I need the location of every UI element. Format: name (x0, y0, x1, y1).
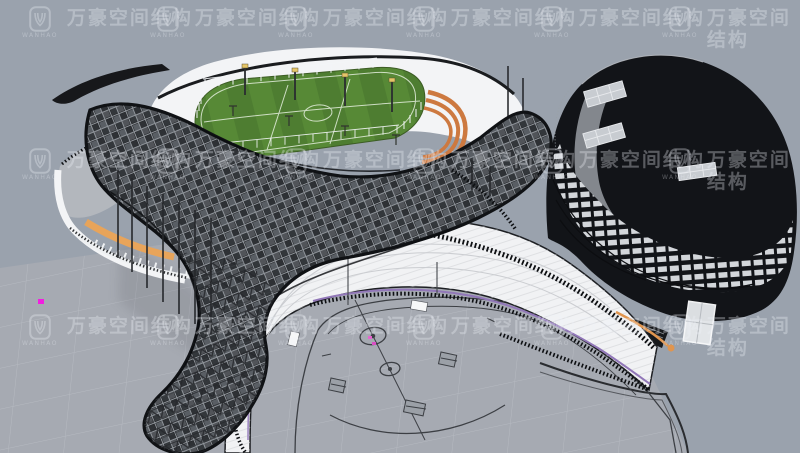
magenta-marker (38, 299, 44, 304)
skylight-panel (683, 301, 715, 344)
pink-marker (368, 336, 372, 339)
pink-marker (372, 342, 376, 345)
architectural-model-scene (0, 0, 800, 453)
render-viewport: WANHAO 万豪空间结构 WANHAO 万豪空间结构 WANHAO 万豪空间结… (0, 0, 800, 453)
